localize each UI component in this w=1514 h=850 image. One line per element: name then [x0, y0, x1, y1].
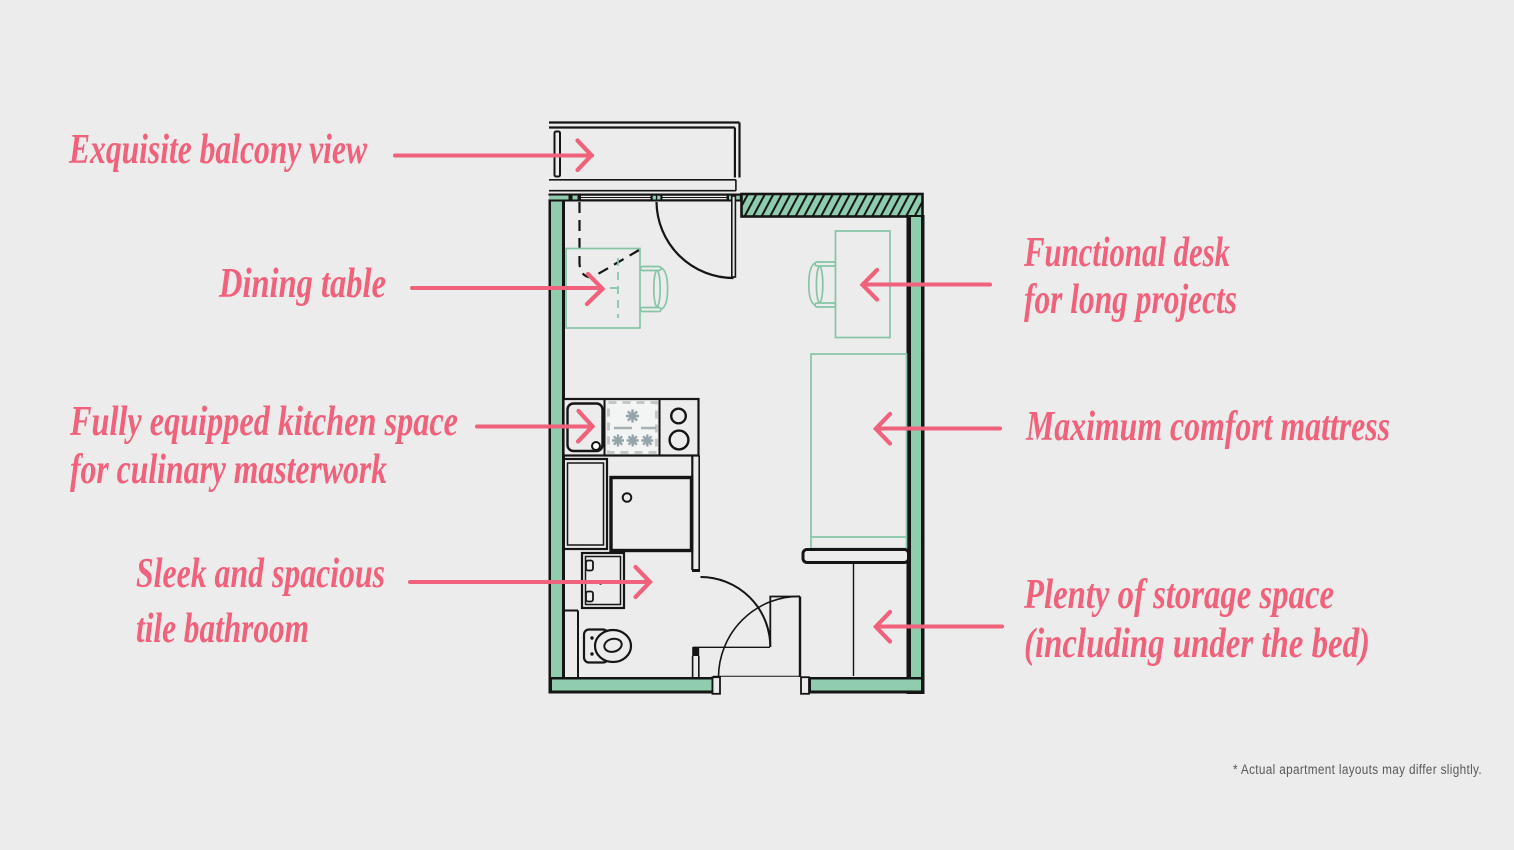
svg-text:Functional desk: Functional desk: [1023, 230, 1230, 276]
svg-text:* Actual apartment layouts may: * Actual apartment layouts may differ sl…: [1233, 762, 1482, 777]
svg-text:tile bathroom: tile bathroom: [136, 606, 309, 652]
svg-text:Exquisite balcony view: Exquisite balcony view: [68, 127, 367, 173]
svg-text:Maximum comfort mattress: Maximum comfort mattress: [1025, 404, 1390, 450]
svg-text:Plenty of storage space: Plenty of storage space: [1023, 572, 1334, 618]
svg-text:Dining table: Dining table: [218, 261, 386, 307]
svg-text:(including under the bed): (including under the bed): [1024, 621, 1370, 667]
svg-text:Fully equipped kitchen space: Fully equipped kitchen space: [69, 399, 458, 445]
svg-text:for long projects: for long projects: [1024, 277, 1237, 323]
svg-text:for culinary masterwork: for culinary masterwork: [70, 447, 387, 493]
svg-text:Sleek and spacious: Sleek and spacious: [136, 551, 385, 597]
